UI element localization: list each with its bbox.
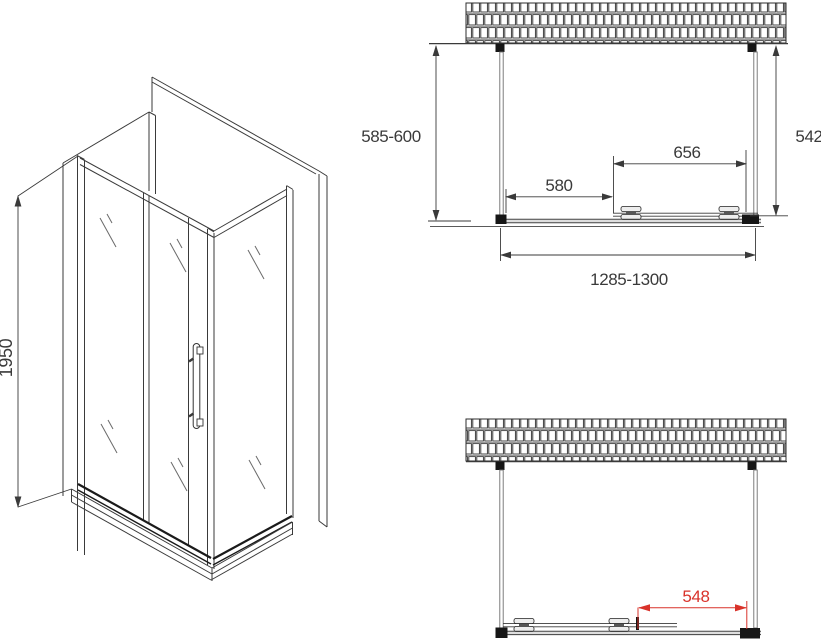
right-fixed-glass xyxy=(754,52,757,216)
fixed-width-dimension-label: 580 xyxy=(545,176,572,195)
sliding-door-bottom-view xyxy=(503,617,677,632)
glass-height-dimension-label: 542 xyxy=(795,127,821,146)
opening-dimension-red: 548 xyxy=(638,587,747,629)
right-fixed-glass-bottom xyxy=(754,470,757,628)
shower-enclosure-drawing: 1950 xyxy=(0,0,821,643)
top-view-dimensions: 585-600 542 656 580 12 xyxy=(361,45,821,289)
door-handle xyxy=(189,344,203,429)
height-dimension: 1950 xyxy=(0,156,78,508)
left-fixed-glass xyxy=(500,52,503,216)
wall-hatch-top-view xyxy=(466,3,786,43)
technical-drawing-page: 1950 xyxy=(0,0,821,643)
door-width-dimension-label: 656 xyxy=(673,143,700,162)
bottom-plan-view: 548 xyxy=(466,419,787,639)
back-right-glass-panel xyxy=(152,77,327,527)
isometric-view: 1950 xyxy=(0,77,327,581)
wall-brackets xyxy=(496,44,757,53)
total-width-dimension-label: 1285-1300 xyxy=(590,270,668,289)
glass-reflection-marks xyxy=(100,214,265,491)
iso-height-label: 1950 xyxy=(0,338,16,377)
left-fixed-glass-bottom xyxy=(500,470,503,628)
wall-hatch-bottom-view xyxy=(466,419,786,461)
wall-brackets-bottom xyxy=(496,462,757,471)
depth-dimension-label: 585-600 xyxy=(361,127,421,146)
sliding-door-top-view xyxy=(613,207,758,220)
right-return-panel xyxy=(213,186,293,566)
opening-width-dimension-label: 548 xyxy=(682,587,709,606)
top-plan-view: 585-600 542 656 580 12 xyxy=(361,3,821,289)
